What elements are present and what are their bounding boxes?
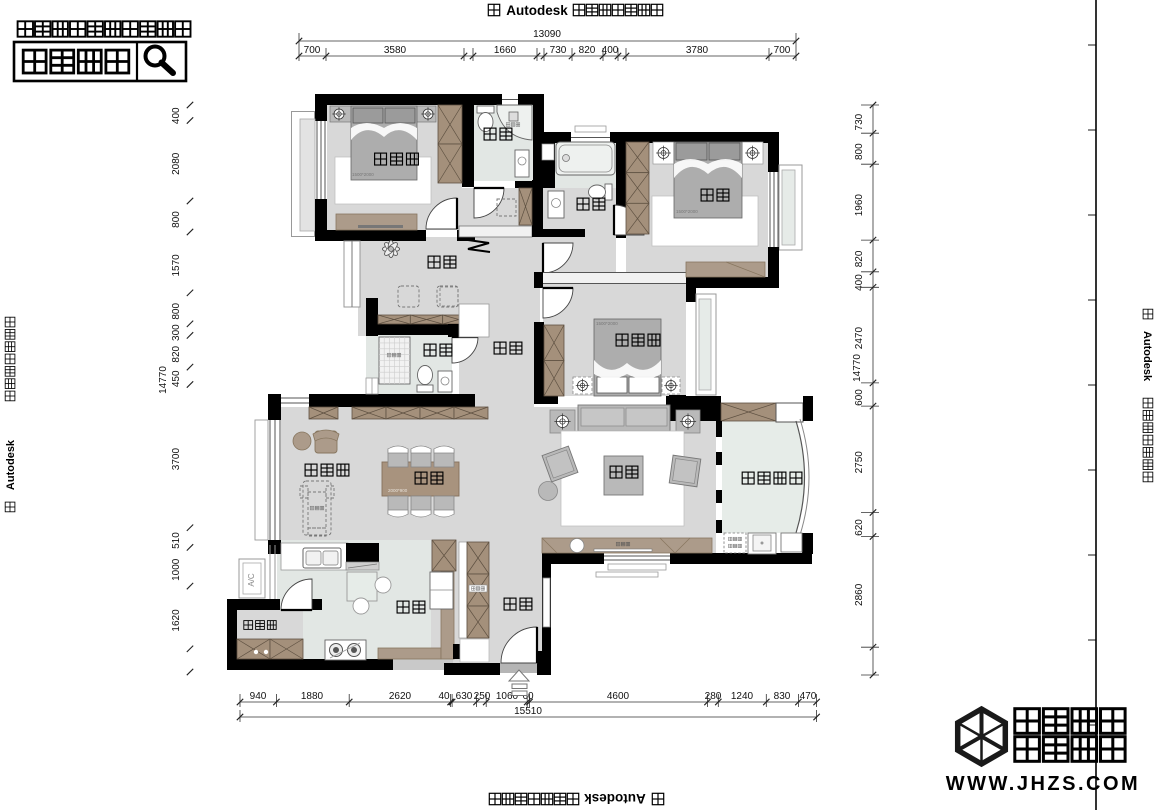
svg-text:2470: 2470 [854, 327, 865, 350]
svg-text:940: 940 [250, 691, 267, 702]
svg-text:2620: 2620 [389, 691, 412, 702]
svg-text:400: 400 [854, 274, 865, 291]
svg-text:620: 620 [854, 519, 865, 536]
svg-text:1620: 1620 [171, 609, 182, 632]
svg-text:1500*2000: 1500*2000 [352, 172, 374, 177]
svg-text:510: 510 [171, 532, 182, 549]
svg-text:4600: 4600 [607, 691, 630, 702]
svg-text:800: 800 [171, 303, 182, 320]
svg-text:800: 800 [171, 211, 182, 228]
svg-text:400: 400 [171, 107, 182, 124]
svg-text:A/C: A/C [247, 573, 256, 587]
svg-text:1660: 1660 [494, 45, 517, 56]
svg-text:820: 820 [579, 45, 596, 56]
svg-text:800: 800 [854, 143, 865, 160]
svg-text:830: 830 [774, 691, 791, 702]
svg-text:3580: 3580 [384, 45, 407, 56]
svg-text:300: 300 [171, 324, 182, 341]
svg-text:3700: 3700 [171, 448, 182, 471]
svg-text:450: 450 [171, 370, 182, 387]
svg-text:820: 820 [171, 345, 182, 362]
svg-text:700: 700 [774, 45, 791, 56]
svg-text:Autodesk: Autodesk [584, 791, 646, 806]
svg-text:14770: 14770 [852, 354, 863, 382]
svg-text:730: 730 [854, 113, 865, 130]
svg-text:1500*2000: 1500*2000 [676, 209, 698, 214]
svg-text:40: 40 [438, 691, 450, 702]
svg-text:WWW.JHZS.COM: WWW.JHZS.COM [946, 773, 1140, 795]
svg-text:Autodesk: Autodesk [1141, 331, 1153, 382]
svg-text:1960: 1960 [854, 194, 865, 217]
svg-text:1240: 1240 [731, 691, 754, 702]
svg-text:730: 730 [550, 45, 567, 56]
svg-text:13090: 13090 [533, 29, 561, 40]
svg-text:3780: 3780 [686, 45, 709, 56]
svg-text:1500*2000: 1500*2000 [596, 321, 618, 326]
svg-text:600: 600 [854, 389, 865, 406]
svg-text:Autodesk: Autodesk [506, 3, 568, 18]
svg-text:2750: 2750 [854, 451, 865, 474]
svg-text:2080: 2080 [171, 152, 182, 175]
svg-text:Autodesk: Autodesk [5, 439, 17, 490]
svg-text:2860: 2860 [854, 583, 865, 606]
svg-text:14770: 14770 [158, 366, 169, 394]
svg-text:630: 630 [456, 691, 473, 702]
svg-text:820: 820 [854, 250, 865, 267]
svg-text:1880: 1880 [301, 691, 324, 702]
svg-text:470: 470 [800, 691, 817, 702]
svg-text:2000*900: 2000*900 [388, 488, 408, 493]
svg-text:15510: 15510 [514, 706, 542, 717]
svg-text:700: 700 [304, 45, 321, 56]
svg-text:1570: 1570 [171, 254, 182, 277]
svg-text:1000: 1000 [171, 558, 182, 581]
